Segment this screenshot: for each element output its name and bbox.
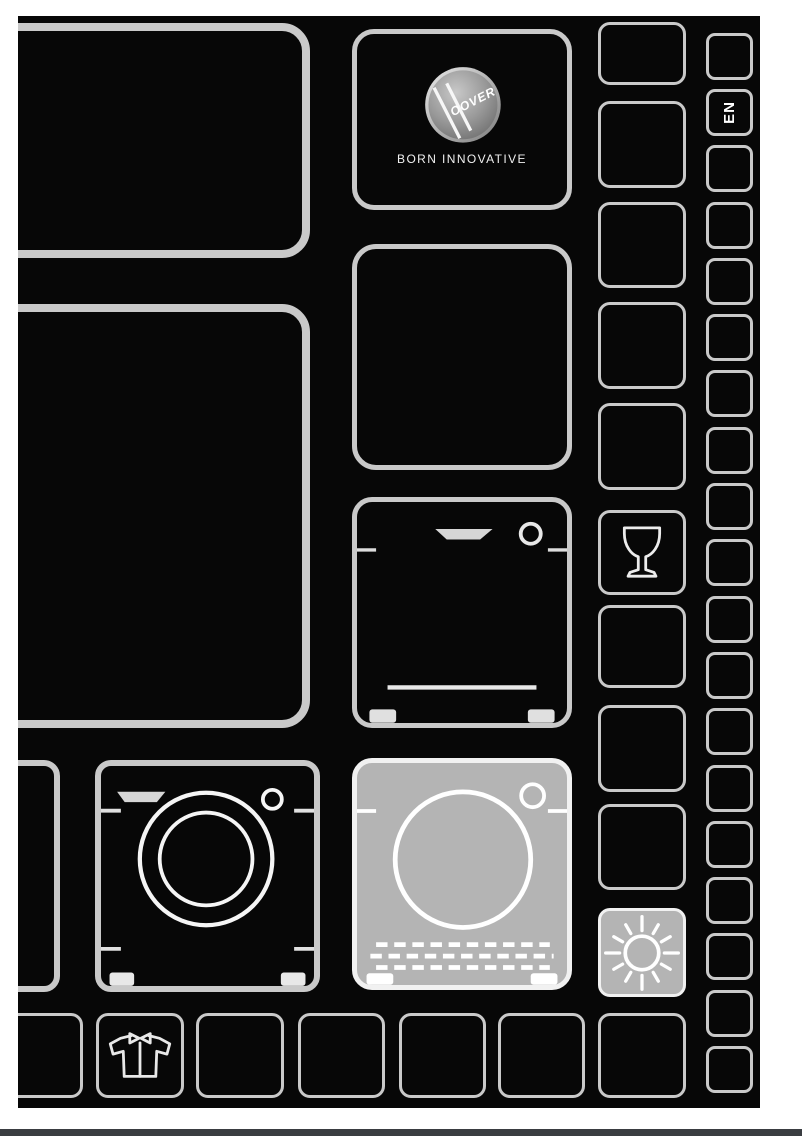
edge-cell-14 [706, 765, 753, 812]
tumble-dryer-icon [357, 763, 567, 985]
edge-cell-16 [706, 877, 753, 924]
page-edge-bar [0, 1129, 802, 1136]
edge-cell-4 [706, 202, 753, 249]
tumble-dryer-cell [352, 758, 572, 990]
bottom-cell-6 [498, 1013, 585, 1098]
partial-cell-left [18, 760, 60, 992]
brand-cell: OOVER BORN INNOVATIVE [352, 29, 572, 210]
edge-cell-15 [706, 821, 753, 868]
edge-cell-3 [706, 145, 753, 192]
edge-cell-8 [706, 427, 753, 474]
edge-cell-18 [706, 990, 753, 1037]
dishwasher-icon [357, 502, 567, 723]
sun-cell [598, 908, 686, 997]
hoover-logo: OOVER [357, 34, 567, 205]
symbol-cell-2 [598, 101, 686, 188]
edge-cell-6 [706, 314, 753, 361]
edge-cell-5 [706, 258, 753, 305]
symbol-cell-5 [598, 403, 686, 490]
edge-cell-11 [706, 596, 753, 643]
cover-grid-panel: OOVER BORN INNOVATIVE [18, 16, 760, 1108]
bottom-cell-3 [196, 1013, 284, 1098]
shirt-cell [96, 1013, 184, 1098]
symbol-cell-3 [598, 202, 686, 288]
edge-cell-9 [706, 483, 753, 530]
wine-glass-icon [601, 513, 683, 592]
bottom-cell-5 [399, 1013, 486, 1098]
edge-cell-19 [706, 1046, 753, 1093]
bottom-cell-7 [598, 1013, 686, 1098]
symbol-cell-1 [598, 22, 686, 85]
brand-tagline: BORN INNOVATIVE [357, 152, 567, 166]
symbol-cell-9 [598, 804, 686, 890]
dishwasher-cell [352, 497, 572, 728]
language-badge-text: EN [721, 101, 738, 124]
shirt-icon [99, 1016, 181, 1095]
bottom-cell-4 [298, 1013, 385, 1098]
edge-cell-13 [706, 708, 753, 755]
bottom-cell-1 [18, 1013, 83, 1098]
edge-cell-10 [706, 539, 753, 586]
empty-appliance-cell [352, 244, 572, 470]
edge-cell-7 [706, 370, 753, 417]
large-cell-mid-left [18, 304, 310, 728]
sun-icon [601, 911, 683, 994]
manual-cover-page: OOVER BORN INNOVATIVE [0, 0, 802, 1136]
washing-machine-cell [95, 760, 320, 992]
edge-cell-17 [706, 933, 753, 980]
symbol-cell-8 [598, 705, 686, 792]
washing-machine-icon [101, 766, 314, 986]
wine-glass-cell [598, 510, 686, 595]
scan-corner-notch [0, 0, 46, 15]
large-cell-top-left [18, 23, 310, 258]
edge-cell-1 [706, 33, 753, 80]
language-cell: EN [706, 89, 753, 136]
edge-cell-12 [706, 652, 753, 699]
language-badge: EN [709, 92, 750, 133]
symbol-cell-4 [598, 302, 686, 389]
symbol-cell-7 [598, 605, 686, 688]
